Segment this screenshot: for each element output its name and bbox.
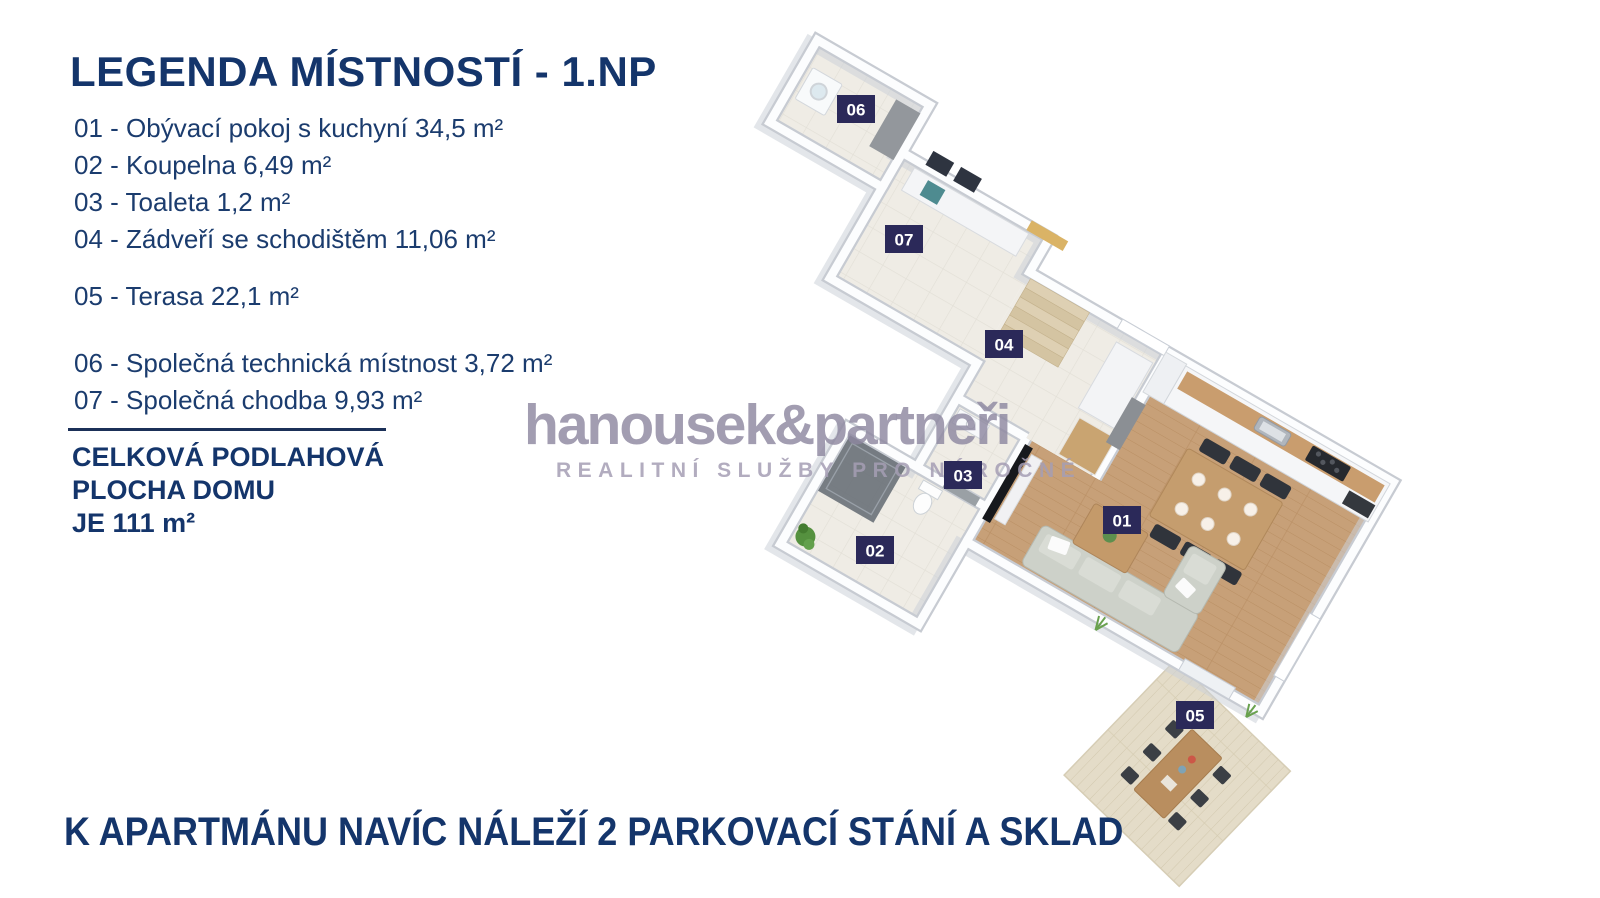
total-area-block: CELKOVÁ PODLAHOVÁ PLOCHA DOMU JE 111 m²: [72, 441, 384, 540]
room-list-item-03: 03 - Toaleta 1,2 m²: [74, 184, 714, 221]
svg-text:02: 02: [866, 541, 885, 560]
room-list-item-07: 07 - Společná chodba 9,93 m²: [74, 382, 714, 419]
legend-separator: [68, 428, 386, 431]
room-label-06: 06: [837, 95, 875, 123]
svg-text:01: 01: [1113, 511, 1132, 530]
room-list-item-01: 01 - Obývací pokoj s kuchyní 34,5 m²: [74, 110, 714, 147]
room-label-02: 02: [856, 536, 894, 564]
svg-text:03: 03: [954, 466, 973, 485]
room-list: 01 - Obývací pokoj s kuchyní 34,5 m² 02 …: [74, 110, 714, 419]
room-label-07: 07: [885, 225, 923, 253]
page: hanousek&partneři REALITNÍ SLUŽBY PRO NÁ…: [0, 0, 1600, 898]
svg-text:04: 04: [995, 335, 1014, 354]
total-area-line-1: CELKOVÁ PODLAHOVÁ: [72, 441, 384, 474]
footer-text: K APARTMÁNU NAVÍC NÁLEŽÍ 2 PARKOVACÍ STÁ…: [64, 810, 1123, 855]
room-label-05: 05: [1176, 701, 1214, 729]
footer: K APARTMÁNU NAVÍC NÁLEŽÍ 2 PARKOVACÍ STÁ…: [64, 810, 1241, 855]
total-area-line-2: PLOCHA DOMU: [72, 474, 384, 507]
room-list-item-06: 06 - Společná technická místnost 3,72 m²: [74, 345, 714, 382]
svg-text:05: 05: [1186, 706, 1205, 725]
room-list-item-05: 05 - Terasa 22,1 m²: [74, 278, 714, 315]
svg-text:07: 07: [895, 230, 914, 249]
room-label-04: 04: [985, 330, 1023, 358]
total-area-line-3: JE 111 m²: [72, 507, 384, 540]
page-title: LEGENDA MÍSTNOSTÍ - 1.NP: [70, 48, 657, 96]
room-label-03: 03: [944, 461, 982, 489]
room-list-item-04: 04 - Zádveří se schodištěm 11,06 m²: [74, 221, 714, 258]
legend: LEGENDA MÍSTNOSTÍ - 1.NP 01 - Obývací po…: [70, 48, 657, 96]
room-label-01: 01: [1103, 506, 1141, 534]
room-list-item-02: 02 - Koupelna 6,49 m²: [74, 147, 714, 184]
svg-text:06: 06: [847, 100, 866, 119]
